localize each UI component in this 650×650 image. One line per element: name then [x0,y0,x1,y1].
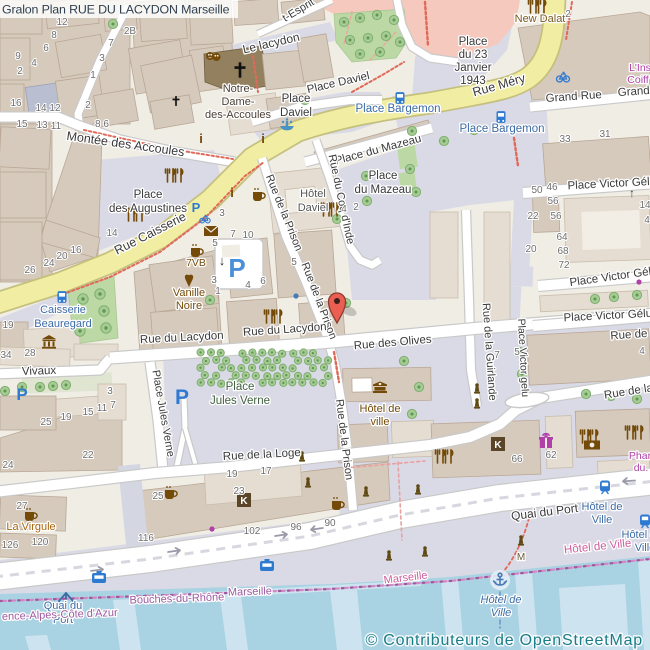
svg-text:des-Accoules: des-Accoules [205,109,272,121]
svg-text:Hôtel de: Hôtel de [360,403,401,415]
svg-text:64: 64 [556,232,568,243]
svg-text:L'Ins: L'Ins [629,62,650,74]
svg-text:5: 5 [514,347,520,358]
svg-text:27: 27 [16,501,28,512]
svg-text:19: 19 [60,412,72,423]
svg-text:Daviel: Daviel [280,107,312,119]
svg-text:25: 25 [40,417,52,428]
svg-text:33: 33 [559,134,571,145]
svg-text:3: 3 [107,386,113,397]
svg-text:46: 46 [546,182,558,193]
svg-text:Place: Place [226,381,255,393]
svg-text:4: 4 [341,204,347,215]
svg-text:Hôtel: Hôtel [300,188,326,200]
svg-text:7: 7 [494,350,500,361]
svg-text:120: 120 [32,537,49,548]
svg-text:6: 6 [43,43,49,54]
svg-text:Vanille: Vanille [173,287,205,299]
svg-text:12: 12 [56,17,68,28]
svg-text:15: 15 [16,119,28,130]
svg-text:28: 28 [24,348,36,359]
svg-text:8: 8 [51,30,57,41]
svg-text:23: 23 [233,486,245,497]
svg-text:72: 72 [558,260,570,271]
svg-text:4: 4 [644,215,650,226]
svg-text:Place: Place [369,170,398,182]
svg-text:du Mazeau: du Mazeau [355,184,412,196]
svg-text:Notre-: Notre- [223,83,254,95]
svg-text:Dame-: Dame- [221,96,254,108]
svg-text:14 12: 14 12 [35,103,60,114]
svg-text:Place: Place [134,189,163,201]
svg-text:3: 3 [211,275,217,286]
svg-text:Coiff: Coiff [627,74,648,86]
svg-text:7: 7 [230,229,236,240]
svg-text:26: 26 [24,265,36,276]
svg-text:24: 24 [43,258,55,269]
svg-text:Gralon Plan RUE DU LACYDON Mar: Gralon Plan RUE DU LACYDON Marseille [2,3,230,17]
svg-text:34: 34 [0,350,12,361]
svg-text:1: 1 [90,70,96,81]
svg-text:Daviel: Daviel [298,202,329,214]
svg-text:11: 11 [97,403,108,414]
svg-text:du.: du. [634,462,649,474]
svg-text:96: 96 [290,522,302,533]
svg-text:2: 2 [17,66,23,77]
svg-text:2: 2 [85,100,91,111]
svg-text:2B: 2B [124,26,137,37]
svg-text:7: 7 [108,38,114,49]
svg-text:↓: ↓ [219,253,226,268]
svg-text:P: P [192,200,201,215]
svg-text:4: 4 [31,58,37,69]
svg-text:17: 17 [260,466,272,477]
svg-text:La Virgule: La Virgule [6,521,55,533]
svg-text:New Dalat: New Dalat [515,13,566,25]
svg-text:14: 14 [639,200,650,211]
svg-text:56: 56 [547,196,559,207]
svg-text:Hôtel de: Hôtel de [582,501,623,513]
svg-text:Place: Place [459,36,488,48]
svg-text:3: 3 [99,53,105,64]
svg-text:Grand: Grand [617,85,650,99]
svg-text:Beauregard: Beauregard [34,318,92,330]
svg-text:6: 6 [260,276,266,287]
svg-text:3: 3 [219,208,225,219]
svg-text:22: 22 [527,211,539,222]
svg-text:i: i [261,131,265,146]
svg-text:20: 20 [56,251,68,262]
svg-text:66: 66 [511,454,523,465]
svg-text:4: 4 [245,280,251,291]
svg-text:7: 7 [110,400,116,411]
svg-text:8 6: 8 6 [95,119,109,130]
svg-text:2: 2 [353,202,359,213]
svg-text:14: 14 [106,228,118,239]
svg-text:9: 9 [15,51,21,62]
svg-text:Place Bargemon: Place Bargemon [459,123,544,135]
svg-text:Ville: Ville [592,514,613,526]
svg-text:116: 116 [138,533,154,544]
svg-text:16: 16 [10,98,22,109]
svg-text:Place Bargemon: Place Bargemon [355,103,440,115]
svg-text:M: M [517,552,525,563]
svg-text:5: 5 [291,257,297,268]
svg-text:Ville: Ville [635,542,650,554]
svg-text:10: 10 [242,230,254,241]
svg-text:20: 20 [525,244,537,255]
svg-text:P: P [16,385,27,404]
svg-text:11: 11 [51,121,62,132]
svg-text:2: 2 [565,9,571,20]
svg-text:5: 5 [212,238,218,249]
svg-text:Place: Place [282,93,311,105]
svg-text:Phar: Phar [629,450,650,462]
svg-text:ville: ville [371,416,390,428]
svg-text:126: 126 [2,540,19,551]
svg-text:Ville: Ville [491,607,512,619]
svg-text:24: 24 [2,460,14,471]
svg-text:Caisserie: Caisserie [40,304,86,316]
svg-text:56: 56 [550,211,562,222]
svg-text:68: 68 [557,246,569,257]
svg-text:15: 15 [82,407,94,418]
svg-text:des Augustines: des Augustines [109,203,187,215]
svg-text:62: 62 [545,450,557,461]
svg-text:© Contributeurs de OpenStreetM: © Contributeurs de OpenStreetMap [365,632,643,649]
svg-text:22: 22 [82,450,94,461]
svg-text:Jules Verne: Jules Verne [210,395,270,407]
svg-text:31: 31 [599,129,611,140]
svg-text:Noire: Noire [176,300,202,312]
svg-text:Janvier: Janvier [454,62,491,74]
svg-text:16: 16 [70,245,82,256]
svg-text:i: i [199,131,203,146]
svg-text:7VB: 7VB [186,257,206,269]
svg-text:19: 19 [226,469,238,480]
svg-text:Marseille: Marseille [228,585,272,599]
svg-text:Hôtel de: Hôtel de [481,594,522,606]
svg-text:K: K [240,496,248,507]
svg-text:90: 90 [324,518,336,529]
svg-text:P: P [228,253,245,283]
svg-text:25: 25 [152,491,164,502]
svg-text:Vivaux: Vivaux [22,365,57,378]
svg-text:1943: 1943 [460,75,486,87]
svg-text:i: i [230,185,234,200]
svg-text:19: 19 [2,320,14,331]
svg-text:13: 13 [36,120,48,131]
svg-text:50: 50 [531,185,543,196]
svg-text:4: 4 [639,346,645,357]
svg-text:du 23: du 23 [459,49,488,61]
svg-text:1: 1 [215,286,221,297]
svg-text:K: K [494,440,502,451]
svg-text:102: 102 [244,526,261,537]
svg-text:P: P [175,386,189,409]
